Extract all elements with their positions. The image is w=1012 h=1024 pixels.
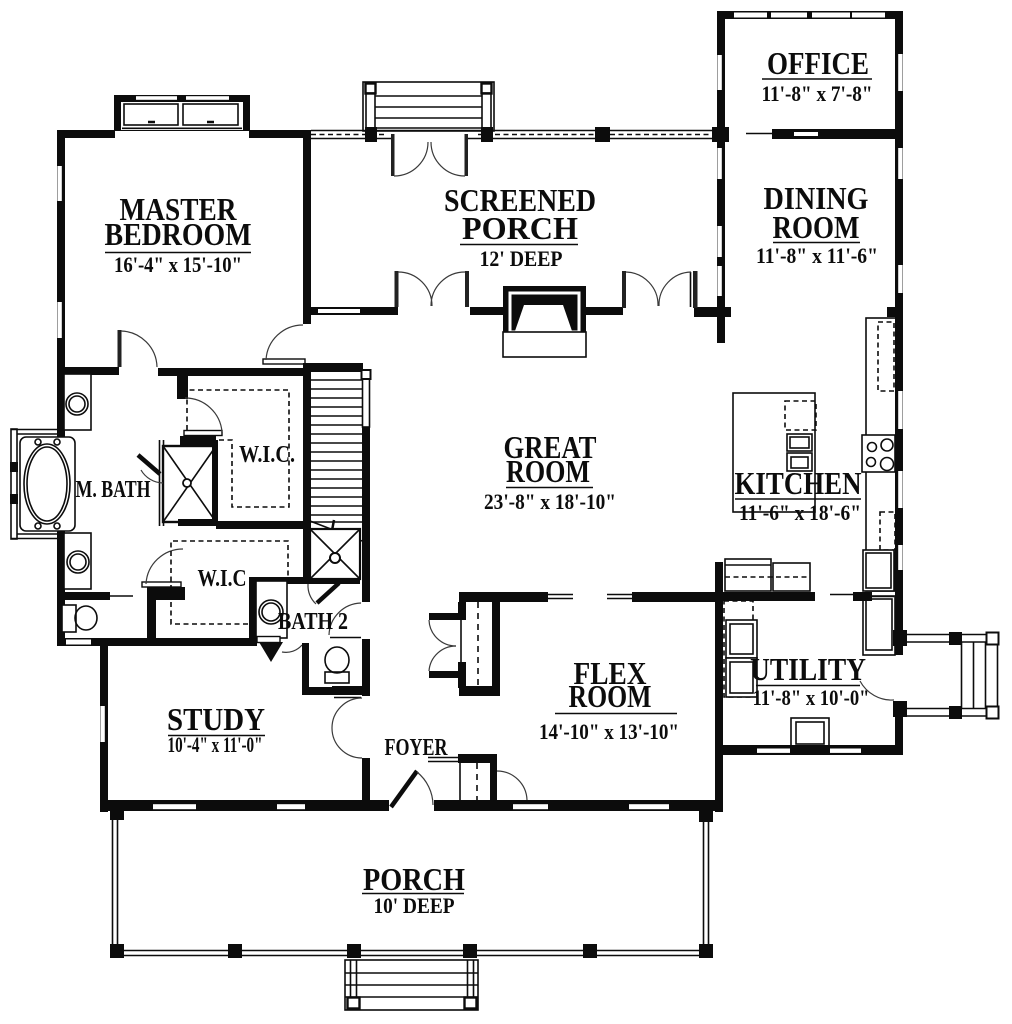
svg-text:PORCH: PORCH xyxy=(363,861,465,897)
svg-text:M. BATH: M. BATH xyxy=(76,477,151,503)
svg-text:ROOM: ROOM xyxy=(773,209,860,245)
svg-text:UTILITY: UTILITY xyxy=(750,651,866,687)
svg-text:KITCHEN: KITCHEN xyxy=(735,465,862,501)
svg-text:W.I.C.: W.I.C. xyxy=(239,442,295,468)
svg-text:11'-8" x 11'-6": 11'-8" x 11'-6" xyxy=(756,243,878,268)
svg-text:OFFICE: OFFICE xyxy=(767,45,869,81)
svg-text:PORCH: PORCH xyxy=(462,210,578,246)
svg-text:23'-8" x 18'-10": 23'-8" x 18'-10" xyxy=(484,489,616,514)
svg-text:ROOM: ROOM xyxy=(569,678,652,714)
svg-text:16'-4" x 15'-10": 16'-4" x 15'-10" xyxy=(114,252,242,277)
svg-text:W.I.C: W.I.C xyxy=(198,566,247,592)
svg-text:10'-4" x 11'-0": 10'-4" x 11'-0" xyxy=(168,732,263,757)
svg-text:11'-6" x 18'-6": 11'-6" x 18'-6" xyxy=(739,500,861,525)
svg-text:11'-8" x 7'-8": 11'-8" x 7'-8" xyxy=(762,81,873,106)
svg-text:10' DEEP: 10' DEEP xyxy=(374,893,455,918)
svg-text:BATH 2: BATH 2 xyxy=(278,609,348,635)
svg-text:12' DEEP: 12' DEEP xyxy=(480,246,563,271)
svg-text:11'-8" x 10'-0": 11'-8" x 10'-0" xyxy=(753,685,870,710)
svg-text:BEDROOM: BEDROOM xyxy=(105,216,252,252)
svg-text:ROOM: ROOM xyxy=(506,453,590,489)
svg-text:14'-10" x 13'-10": 14'-10" x 13'-10" xyxy=(539,719,679,744)
